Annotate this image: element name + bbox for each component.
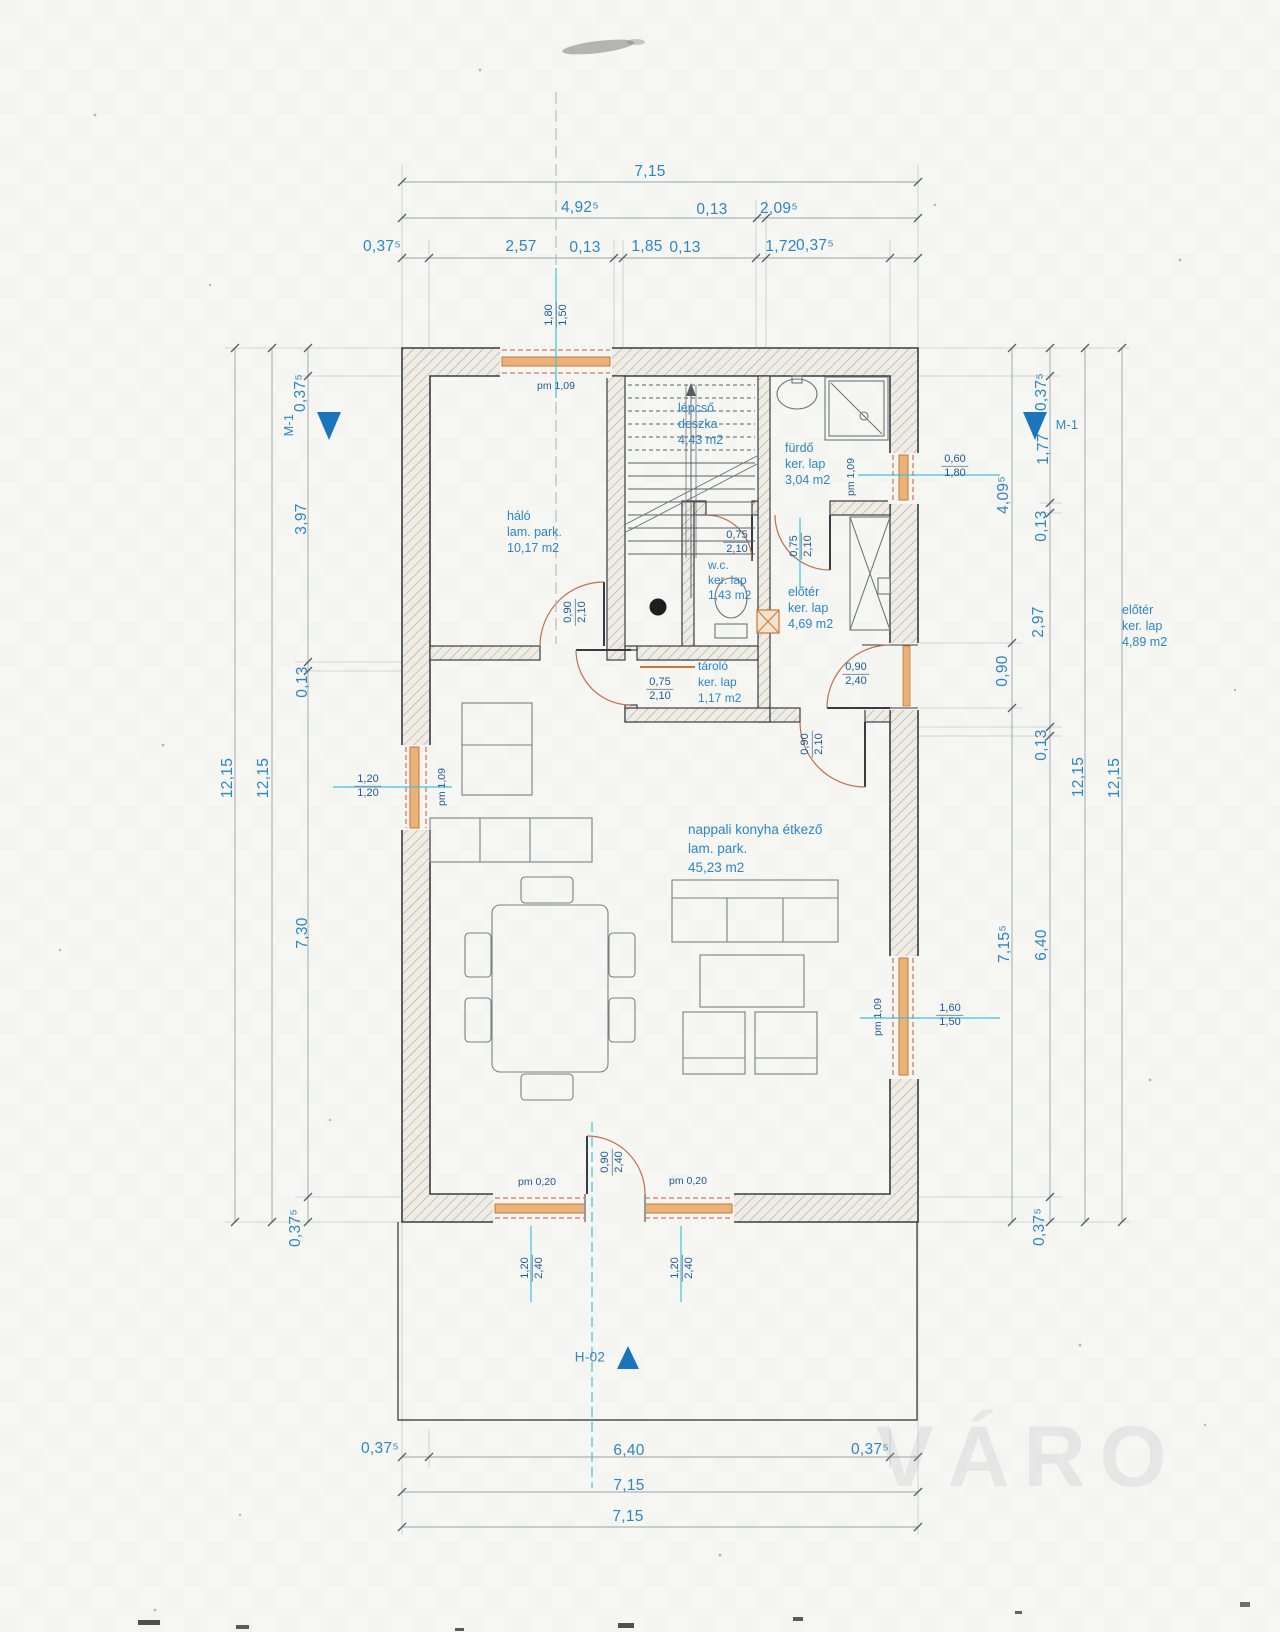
room-label-lepcso: lépcső deszka 4,43 m2 [678,400,723,448]
dim-right-window-size: 1,60 1,50 [936,1002,963,1028]
room-nappali-finish: lam. park. [688,839,822,858]
dim-bottom-r1-2: 6,40 [613,1442,644,1460]
room-halo-area: 10,17 m2 [507,540,562,556]
dim-wc-door-size: 0,75 2,10 [723,529,750,555]
dim-top-r3-3: 0,13 [569,239,600,257]
dim-top-r2-2: 0,13 [696,201,727,219]
bathroom-window [899,455,908,500]
room-lepcso-name: lépcső [678,400,723,416]
pm-label-bathroom-window: pm 1,09 [845,458,857,496]
dim-hall-door-size: 0,90 2,10 [799,730,825,757]
room-furdo-finish: ker. lap [785,456,830,472]
dim-bottom-window-left-size: 1,20 2,40 [519,1254,545,1281]
room-label-eloter2: előtér ker. lap 4,89 m2 [1122,602,1167,650]
room-tarolo-name: tároló [698,658,741,674]
dim-right-v3: 12,15 [1070,757,1088,797]
chair [465,998,491,1042]
chair [609,933,635,977]
toilet-tank [715,624,747,638]
dim-right-window-h: 1,50 [939,1016,960,1029]
dim-bwl-w: 1,20 [519,1254,533,1281]
coffee-table [700,955,804,1007]
armchair [755,1012,817,1074]
dim-left-v3-4: 7,30 [294,917,312,948]
dim-top-r3-2: 2,57 [505,238,536,256]
dim-right-window-w: 1,60 [936,1002,963,1016]
dim-top-r3-6: 1,72 [765,238,796,256]
room-nappali-area: 45,23 m2 [688,858,822,877]
room-wc-name: w.c. [708,558,751,573]
dim-storage-door-w: 0,75 [646,676,673,690]
dim-left-v3-2: 3,97 [293,503,311,534]
room-eloter2-finish: ker. lap [1122,618,1167,634]
window-openings [400,346,920,1224]
dimension-ticks [231,178,1126,1531]
dim-right-v2-4: 2,97 [1030,606,1048,637]
wardrobe-handle [878,578,890,594]
dim-left-v2: 12,15 [255,758,273,798]
room-tarolo-area: 1,17 m2 [698,690,741,706]
watermark: VÁRO [876,1408,1180,1507]
dim-left-window-w: 1,20 [354,773,381,787]
marker-h02-label: H-02 [575,1350,605,1365]
dim-top-r3-4: 1,85 [631,238,662,256]
dim-entry-door-size: 0,90 2,40 [842,661,869,687]
dim-bathroom-door-w: 0,75 [788,532,802,559]
dim-bedroom-door-w: 0,90 [562,598,576,625]
dim-wc-door-h: 2,10 [726,543,747,556]
scan-artifacts [59,37,1250,1631]
pm-label-right-window: pm 1,09 [872,998,884,1036]
kitchen-counter-a [462,703,532,795]
pm-label-bottom-window-right: pm 0,20 [669,1175,707,1187]
dim-bathroom-door-h: 2,10 [802,535,815,556]
dim-right-v2-3: 0,13 [1033,510,1051,541]
dim-right-v1-1: 4,09⁵ [995,476,1013,514]
dim-bathroom-window-h: 1,80 [944,467,965,480]
dim-bottom-door-size: 0,90 2,40 [599,1148,625,1175]
room-label-tarolo: tároló ker. lap 1,17 m2 [698,658,741,706]
column-dot [650,599,667,616]
dim-left-v3-1: 0,37⁵ [292,374,310,412]
dim-hall-door-w: 0,90 [799,730,813,757]
terrace-outline [398,1222,917,1420]
pm-label-bottom-window-left: pm 0,20 [518,1176,556,1188]
bottom-window-left [495,1204,585,1213]
room-halo-finish: lam. park. [507,524,562,540]
kitchen-counter-b [430,818,592,862]
bottom-window-right [645,1204,732,1213]
bottom-door-opening [584,1192,646,1224]
dim-bottom-door-w: 0,90 [599,1148,613,1175]
room-furdo-area: 3,04 m2 [785,472,830,488]
dim-entry-door-h: 2,40 [845,675,866,688]
dim-right-v1-2: 0,90 [994,655,1012,686]
dim-top-r3-1: 0,37⁵ [363,238,401,256]
room-halo-name: háló [507,508,562,524]
dim-bedroom-door-size: 0,90 2,10 [562,598,588,625]
marker-m1-right-label: M-1 [1056,418,1078,432]
furniture [430,703,838,1100]
dim-left-v1: 12,15 [219,758,237,798]
dim-right-v2-5: 0,13 [1033,729,1051,760]
pm-label-left-window: pm 1,09 [436,768,448,806]
room-label-nappali: nappali konyha étkező lam. park. 45,23 m… [688,820,822,877]
marker-m1-left-label: M-1 [282,414,296,436]
dim-left-v3-3: 0,13 [294,666,312,697]
dim-bwr-w: 1,20 [669,1254,683,1281]
dim-entry-door-w: 0,90 [842,661,869,675]
dim-right-v2-2: 1,77 [1035,433,1053,464]
armchair [683,1012,745,1074]
dim-bottom-r2: 7,15 [613,1477,644,1495]
chair [609,998,635,1042]
dim-right-v1-3: 7,15⁵ [996,925,1014,963]
dim-top-window-size: 1,80 1,50 [543,301,569,328]
dimension-lines [235,182,1122,1527]
chair [521,877,573,903]
sofa [672,880,838,942]
dim-top-window-h: 1,50 [557,304,570,325]
dim-bwr-h: 2,40 [683,1257,696,1278]
dim-bedroom-door-h: 2,10 [576,601,589,622]
room-label-furdo: fürdő ker. lap 3,04 m2 [785,440,830,488]
dim-left-v3-5: 0,37⁵ [287,1209,305,1247]
room-furdo-name: fürdő [785,440,830,456]
room-nappali-name: nappali konyha étkező [688,820,822,839]
room-label-wc: w.c. ker. lap 1,43 m2 [708,558,751,603]
room-label-eloter: előtér ker. lap 4,69 m2 [788,584,833,632]
dim-wc-door-w: 0,75 [723,529,750,543]
dim-top-total: 7,15 [634,163,665,181]
living-room-window [899,958,908,1075]
room-lepcso-area: 4,43 m2 [678,432,723,448]
m1-triangle-left [317,412,341,440]
dim-storage-door-size: 0,75 2,10 [646,676,673,702]
dim-bottom-door-h: 2,40 [613,1151,626,1172]
dim-top-r3-5: 0,13 [669,239,700,257]
floor-plan-page: 7,15 4,92⁵ 0,13 2,09⁵ 0,37⁵ 2,57 0,13 1,… [0,0,1280,1632]
dim-storage-door-h: 2,10 [649,690,670,703]
room-eloter-area: 4,69 m2 [788,616,833,632]
dim-bathroom-window-size: 0,60 1,80 [941,453,968,479]
room-eloter2-area: 4,89 m2 [1122,634,1167,650]
dining-table [492,905,608,1072]
exterior-walls [402,348,918,1222]
h02-triangle [617,1346,639,1369]
room-label-halo: háló lam. park. 10,17 m2 [507,508,562,556]
room-wc-area: 1,43 m2 [708,588,751,603]
dim-bathroom-window-w: 0,60 [941,453,968,467]
room-eloter-finish: ker. lap [788,600,833,616]
dim-right-v2-1: 0,37⁵ [1033,373,1051,411]
chair [465,933,491,977]
dim-bottom-window-right-size: 1,20 2,40 [669,1254,695,1281]
dim-top-r2-1: 4,92⁵ [561,199,599,217]
dim-left-window-h: 1,20 [357,787,378,800]
dim-hall-door-h: 2,10 [813,733,826,754]
room-lepcso-finish: deszka [678,416,723,432]
dim-right-v2-6: 6,40 [1033,929,1051,960]
interior-walls [430,376,890,722]
dim-bwl-h: 2,40 [533,1257,546,1278]
pm-label-top-window: pm 1,09 [537,380,575,392]
dim-bottom-r1-1: 0,37⁵ [361,1440,399,1458]
dim-right-v4: 12,15 [1106,758,1124,798]
dim-bottom-r3: 7,15 [612,1508,643,1526]
room-wc-finish: ker. lap [708,573,751,588]
dim-right-v2-7: 0,37⁵ [1031,1208,1049,1246]
room-eloter2-name: előtér [1122,602,1167,618]
dim-left-window-size: 1,20 1,20 [354,773,381,799]
room-eloter-name: előtér [788,584,833,600]
chair [521,1074,573,1100]
room-tarolo-finish: ker. lap [698,674,741,690]
dim-top-r2-3: 2,09⁵ [760,200,798,218]
dim-top-r3-7: 0,37⁵ [796,237,834,255]
dim-bathroom-door-size: 0,75 2,10 [788,532,814,559]
dim-top-window-w: 1,80 [543,301,557,328]
